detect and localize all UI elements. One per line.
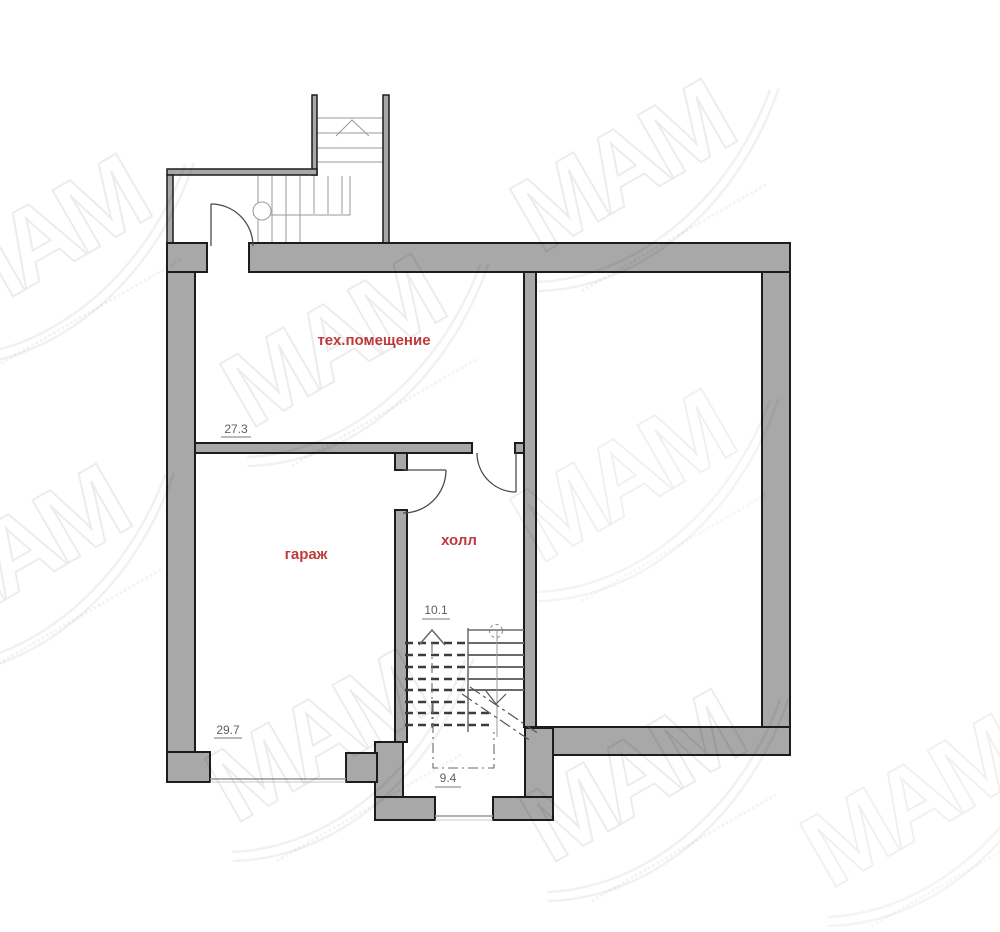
- wall-stair-enclosure-left: [312, 95, 317, 175]
- wall-top-west-block: [167, 243, 207, 272]
- wall-west: [167, 272, 195, 752]
- wall-tech-partition: [195, 443, 472, 453]
- room-label-garage: гараж: [285, 546, 328, 563]
- wall-tech-partition-endcap: [515, 443, 524, 453]
- wall-garage-partition-stub: [395, 453, 407, 470]
- area-value-lobby: 9.4: [440, 771, 457, 785]
- wall-bay-door-left-pier: [375, 797, 435, 820]
- wall-top: [249, 243, 790, 272]
- drain-circle: [253, 202, 271, 220]
- area-value-hall: 10.1: [424, 603, 448, 617]
- floor-plan-basement: МАМ: [0, 0, 1000, 932]
- wall-stair-enclosure-west: [167, 175, 173, 243]
- room-label-hall: холл: [441, 532, 477, 549]
- wall-east: [762, 272, 790, 755]
- wall-stair-enclosure-right: [383, 95, 389, 243]
- area-value-tech: 27.3: [224, 422, 248, 436]
